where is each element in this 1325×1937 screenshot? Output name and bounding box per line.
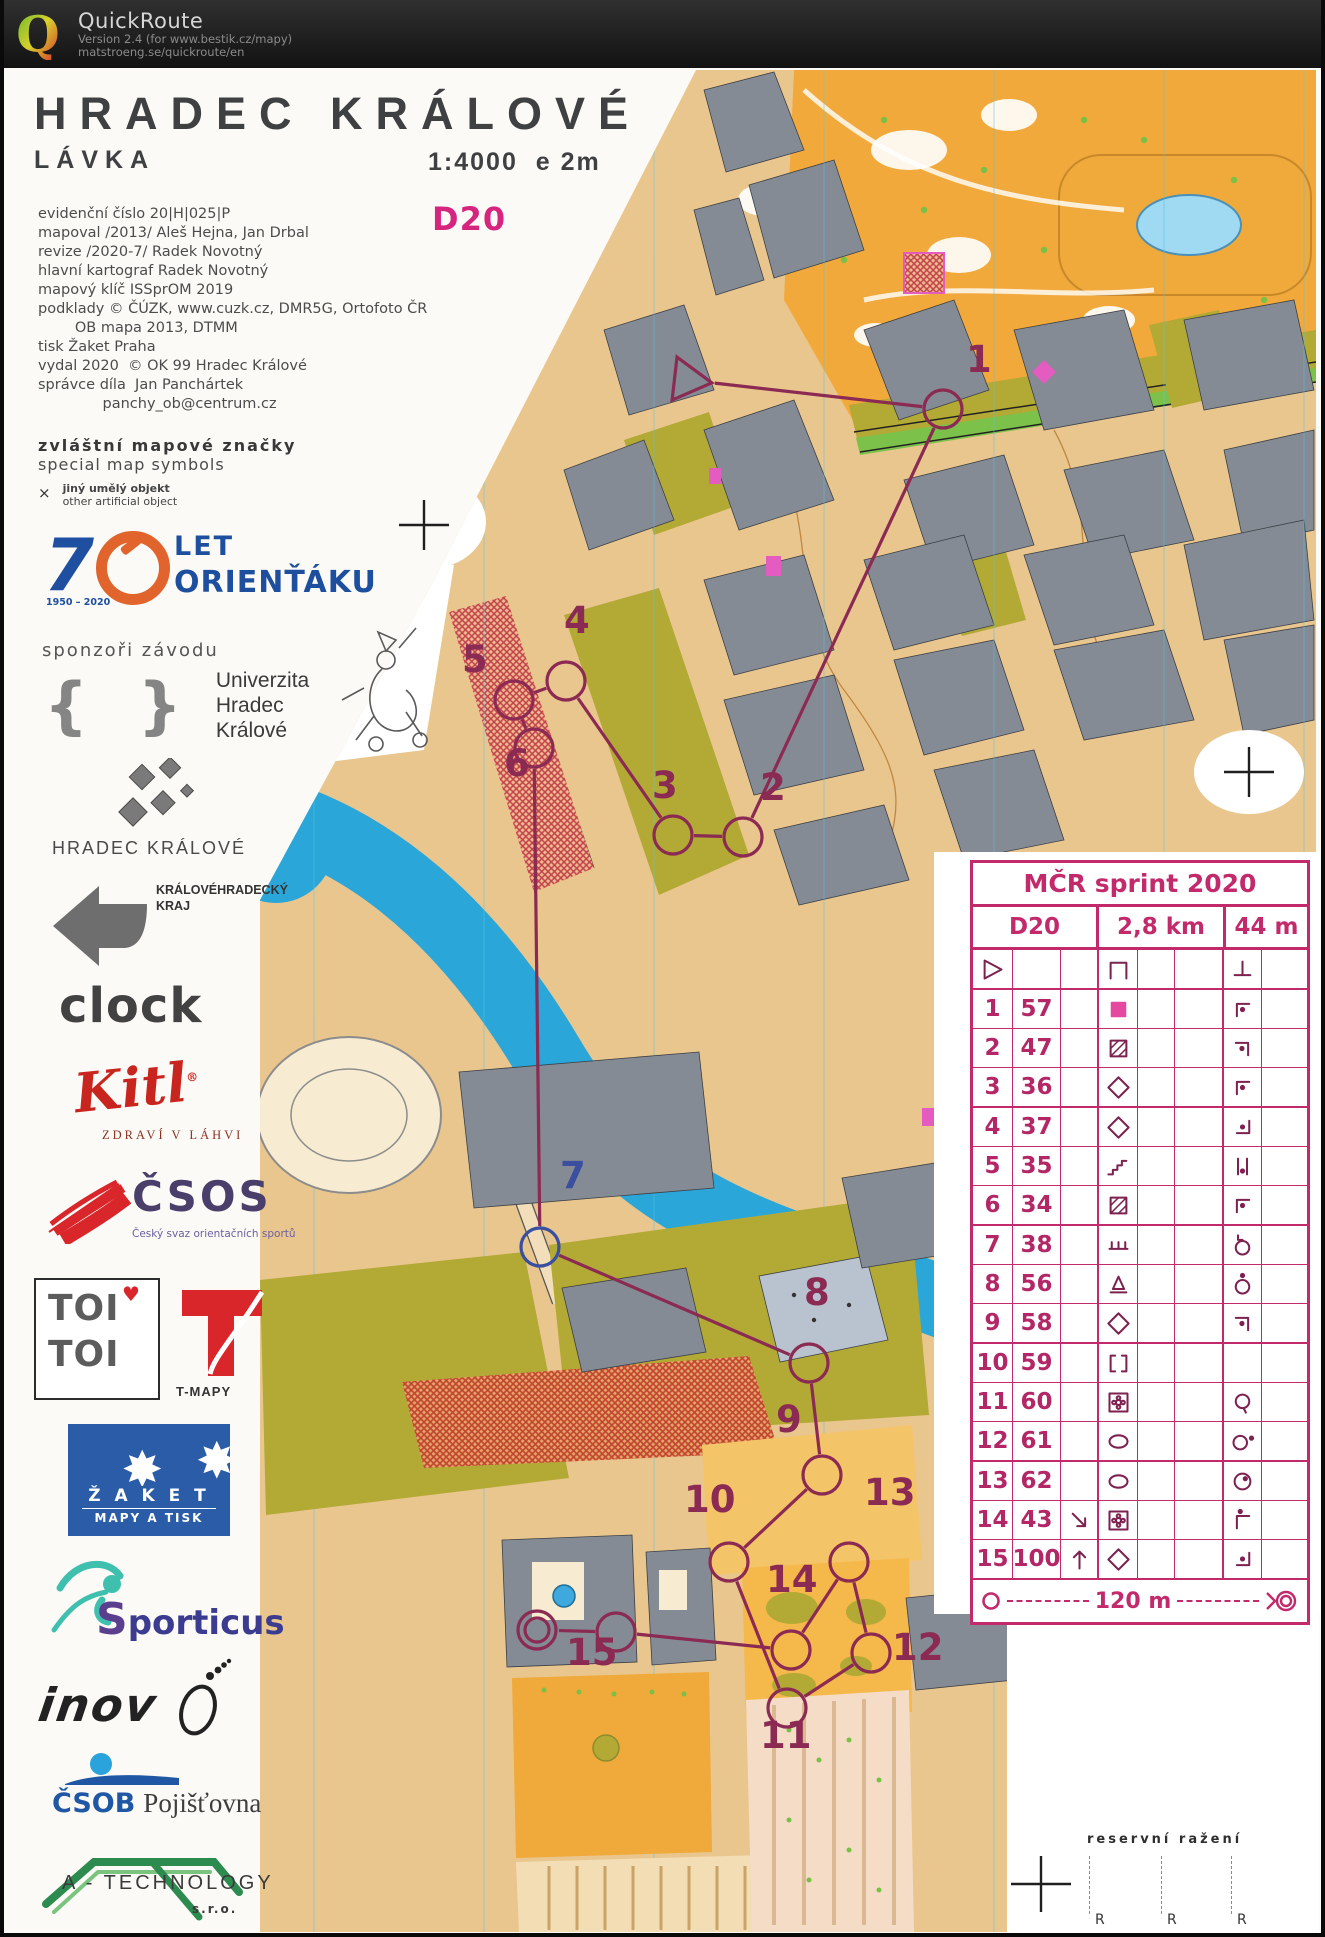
map-title: HRADEC KRÁLOVÉ	[34, 88, 641, 140]
t-mapy-logo-icon	[174, 1282, 269, 1382]
corner-se-dot-symbol-icon	[1224, 1540, 1262, 1578]
card-row-control-4: 437	[973, 1108, 1307, 1147]
circle-corner-top-symbol-icon	[1224, 1226, 1262, 1264]
card-row-start	[973, 950, 1307, 990]
arrow-se-symbol-icon	[1061, 1501, 1099, 1539]
reserve-dashed-line	[1089, 1856, 1090, 1914]
sponsor-a-technology-suffix: s.r.o.	[192, 1902, 237, 1916]
diamond-symbol-icon	[1099, 1304, 1138, 1342]
gate-symbol-icon	[1099, 1344, 1138, 1382]
csos-swoosh-icon	[39, 1172, 131, 1244]
control-number-14: 14	[766, 1558, 818, 1601]
arrow-n-symbol-icon	[1061, 1540, 1099, 1578]
sponsor-toi-toi: TOI TOI ♥	[34, 1278, 160, 1400]
imprint-line: tisk Žaket Praha	[38, 338, 427, 357]
ellipse-symbol-icon	[1099, 1422, 1138, 1460]
imprint-line: hlavní kartograf Radek Novotný	[38, 262, 427, 281]
sponsor-inov: inov	[35, 1678, 161, 1732]
imprint-line: mapový klíč ISSprOM 2019	[38, 281, 427, 300]
map-imprint: evidenční číslo 20|H|025|Pmapoval /2013/…	[38, 205, 427, 414]
card-class: D20	[973, 907, 1099, 947]
control-number-7: 7	[560, 1154, 586, 1197]
card-title: MČR sprint 2020	[973, 863, 1307, 907]
stairs-symbol-icon	[1099, 1147, 1138, 1185]
corner-se-dot-symbol-icon	[1224, 1108, 1262, 1146]
reserve-punching-block: reservní ražení RRR	[1009, 1760, 1316, 1932]
kralovehradecky-kraj-logo-icon	[47, 876, 152, 971]
sponsor-univerzita-hradec-kralove: { } Univerzita Hradec Králové	[44, 668, 309, 743]
control-number-4: 4	[564, 599, 590, 642]
card-class-row: D20 2,8 km 44 m	[973, 907, 1307, 950]
reserve-r-mark: R	[1237, 1912, 1247, 1928]
sponsor-city-name: HRADEC KRÁLOVÉ	[52, 838, 246, 859]
between-dot-symbol-icon	[1224, 1147, 1262, 1185]
card-climb: 44 m	[1226, 907, 1307, 947]
finish-circle-icon	[1265, 1590, 1299, 1612]
control-number-3: 3	[652, 764, 678, 807]
card-row-control-10: 1059	[973, 1344, 1307, 1383]
x-symbol-icon: ×	[38, 484, 51, 502]
circle-dot-top-symbol-icon	[1224, 1265, 1262, 1303]
control-description-card: MČR sprint 2020 D20 2,8 km 44 m 15724733…	[970, 860, 1310, 1625]
inov-foot-icon	[164, 1658, 234, 1738]
card-row-control-15: 15100	[973, 1540, 1307, 1580]
quickroute-logo-icon: Q	[12, 8, 64, 60]
control-number-13: 13	[864, 1471, 916, 1514]
circle-tail-symbol-icon	[1224, 1383, 1262, 1421]
sponsor-clock: clock	[59, 978, 202, 1034]
control-number-9: 9	[776, 1398, 802, 1441]
corner-nw-dot-symbol-icon	[1224, 1186, 1262, 1224]
diamond-symbol-icon	[1099, 1540, 1138, 1578]
corner-nw-dot-symbol-icon	[1224, 1068, 1262, 1106]
special-heading-cz: zvláštní mapové značky	[38, 436, 296, 455]
imprint-line: mapoval /2013/ Aleš Hejna, Jan Drbal	[38, 224, 427, 243]
corner-ne-dot-symbol-icon	[1224, 1304, 1262, 1342]
imprint-line: panchy_ob@centrum.cz	[38, 395, 427, 414]
circle-dot-inside-symbol-icon	[1224, 1462, 1262, 1500]
csob-icon	[59, 1752, 189, 1788]
card-row-control-11: 1160	[973, 1383, 1307, 1422]
diamond-symbol-icon	[1099, 1108, 1138, 1146]
perpendicular-symbol-icon	[1224, 950, 1262, 988]
start-circle-icon	[981, 1591, 1001, 1611]
reserve-dashed-line	[1161, 1856, 1162, 1914]
70-let-orientaku-logo: 7 1950 – 2020 LET ORIENŤÁKU	[44, 525, 344, 615]
card-row-control-6: 634	[973, 1186, 1307, 1226]
control-number-11: 11	[760, 1714, 812, 1757]
canopy-symbol-icon	[1099, 950, 1138, 988]
card-row-control-3: 336	[973, 1068, 1307, 1108]
zaket-suns-icon	[68, 1428, 230, 1486]
reserve-dashed-line	[1231, 1856, 1232, 1914]
control-number-6: 6	[504, 742, 530, 785]
card-row-control-2: 247	[973, 1029, 1307, 1068]
card-row-control-9: 958	[973, 1304, 1307, 1344]
reserve-r-mark: R	[1095, 1912, 1105, 1928]
wall-symbol-icon	[1099, 1226, 1138, 1264]
card-row-control-14: 1443	[973, 1501, 1307, 1540]
sponsor-a-technology: A - TECHNOLOGY	[62, 1872, 274, 1895]
braces-icon: { }	[44, 669, 196, 742]
statue-symbol-icon	[1099, 1265, 1138, 1303]
flower-box-symbol-icon	[1099, 1383, 1138, 1421]
sponsor-csos-tagline: Český svaz orientačních sportů	[132, 1228, 296, 1240]
special-heading-en: special map symbols	[38, 455, 296, 474]
control-number-2: 2	[760, 766, 786, 809]
card-length: 2,8 km	[1099, 907, 1226, 947]
special-symbols-block: zvláštní mapové značky special map symbo…	[38, 436, 296, 508]
control-number-1: 1	[966, 338, 992, 381]
map-subtitle: LÁVKA	[34, 146, 155, 175]
corner-nw-dot-symbol-icon	[1224, 990, 1262, 1028]
sponsor-kraj: KRÁLOVÉHRADECKÝ KRAJ	[156, 882, 288, 914]
app-site-link[interactable]: matstroeng.se/quickroute/en	[78, 46, 292, 59]
app-header: Q QuickRoute Version 2.4 (for www.bestik…	[0, 0, 1325, 68]
diamond-symbol-icon	[1099, 1068, 1138, 1106]
circle-dot-right-symbol-icon	[1224, 1422, 1262, 1460]
reserve-label: reservní ražení	[1087, 1832, 1242, 1847]
card-row-control-8: 856	[973, 1265, 1307, 1304]
sponsor-zaket: Ž A K E T MAPY A TISK	[68, 1424, 230, 1536]
heart-icon: ♥	[122, 1282, 140, 1306]
card-row-control-7: 738	[973, 1226, 1307, 1265]
card-row-control-1: 157	[973, 990, 1307, 1029]
app-title: QuickRoute	[78, 9, 292, 33]
flower-box-symbol-icon	[1099, 1501, 1138, 1539]
card-row-control-5: 535	[973, 1147, 1307, 1186]
sponsor-kitl: Kitl®	[71, 1049, 202, 1126]
ellipse-symbol-icon	[1099, 1462, 1138, 1500]
corner-ne-dot-symbol-icon	[1224, 1029, 1262, 1067]
imprint-line: evidenční číslo 20|H|025|P	[38, 205, 427, 224]
imprint-line: podklady © ČÚZK, www.cuzk.cz, DMR5G, Ort…	[38, 300, 427, 319]
sponsors-heading: sponzoři závodu	[42, 640, 219, 661]
reserve-r-mark: R	[1167, 1912, 1177, 1928]
svg-text:Q: Q	[16, 8, 59, 60]
imprint-line: správce díla Jan Panchártek	[38, 376, 427, 395]
control-number-12: 12	[892, 1626, 944, 1669]
quickroute-window: 123456789101112131415 Q QuickRoute Versi…	[0, 0, 1325, 1937]
sponsor-sporticus: Sporticus	[96, 1594, 285, 1645]
imprint-line: OB mapa 2013, DTMM	[38, 319, 427, 338]
corner-nw-dot-above-symbol-icon	[1224, 1501, 1262, 1539]
sponsor-t-mapy: T-MAPY	[176, 1384, 231, 1399]
building-hatched-symbol-icon	[1099, 1029, 1138, 1067]
card-row-control-12: 1261	[973, 1422, 1307, 1462]
imprint-line: revize /2020-7/ Radek Novotný	[38, 243, 427, 262]
sponsor-kitl-tagline: ZDRAVÍ V LÁHVI	[102, 1128, 243, 1143]
sponsor-csob-pojistovna: ČSOBPojišťovna	[52, 1788, 261, 1819]
control-number-8: 8	[804, 1271, 830, 1314]
imprint-line: vydal 2020 © OK 99 Hradec Králové	[38, 357, 427, 376]
map-scale: 1:4000 e 2m	[428, 148, 601, 177]
building-filled-symbol-icon	[1099, 990, 1138, 1028]
control-number-10: 10	[684, 1478, 736, 1521]
control-number-5: 5	[462, 638, 488, 681]
sponsor-csos: ČSOS	[132, 1172, 272, 1221]
control-number-15: 15	[566, 1631, 618, 1674]
hradec-kralove-city-logo-icon	[99, 758, 199, 836]
course-class-label: D20	[432, 200, 506, 238]
building-hatched-symbol-icon	[1099, 1186, 1138, 1224]
finish-leg-distance: 120 m	[1095, 1589, 1172, 1614]
card-footer: 120 m	[973, 1580, 1307, 1622]
card-row-control-13: 1362	[973, 1462, 1307, 1501]
